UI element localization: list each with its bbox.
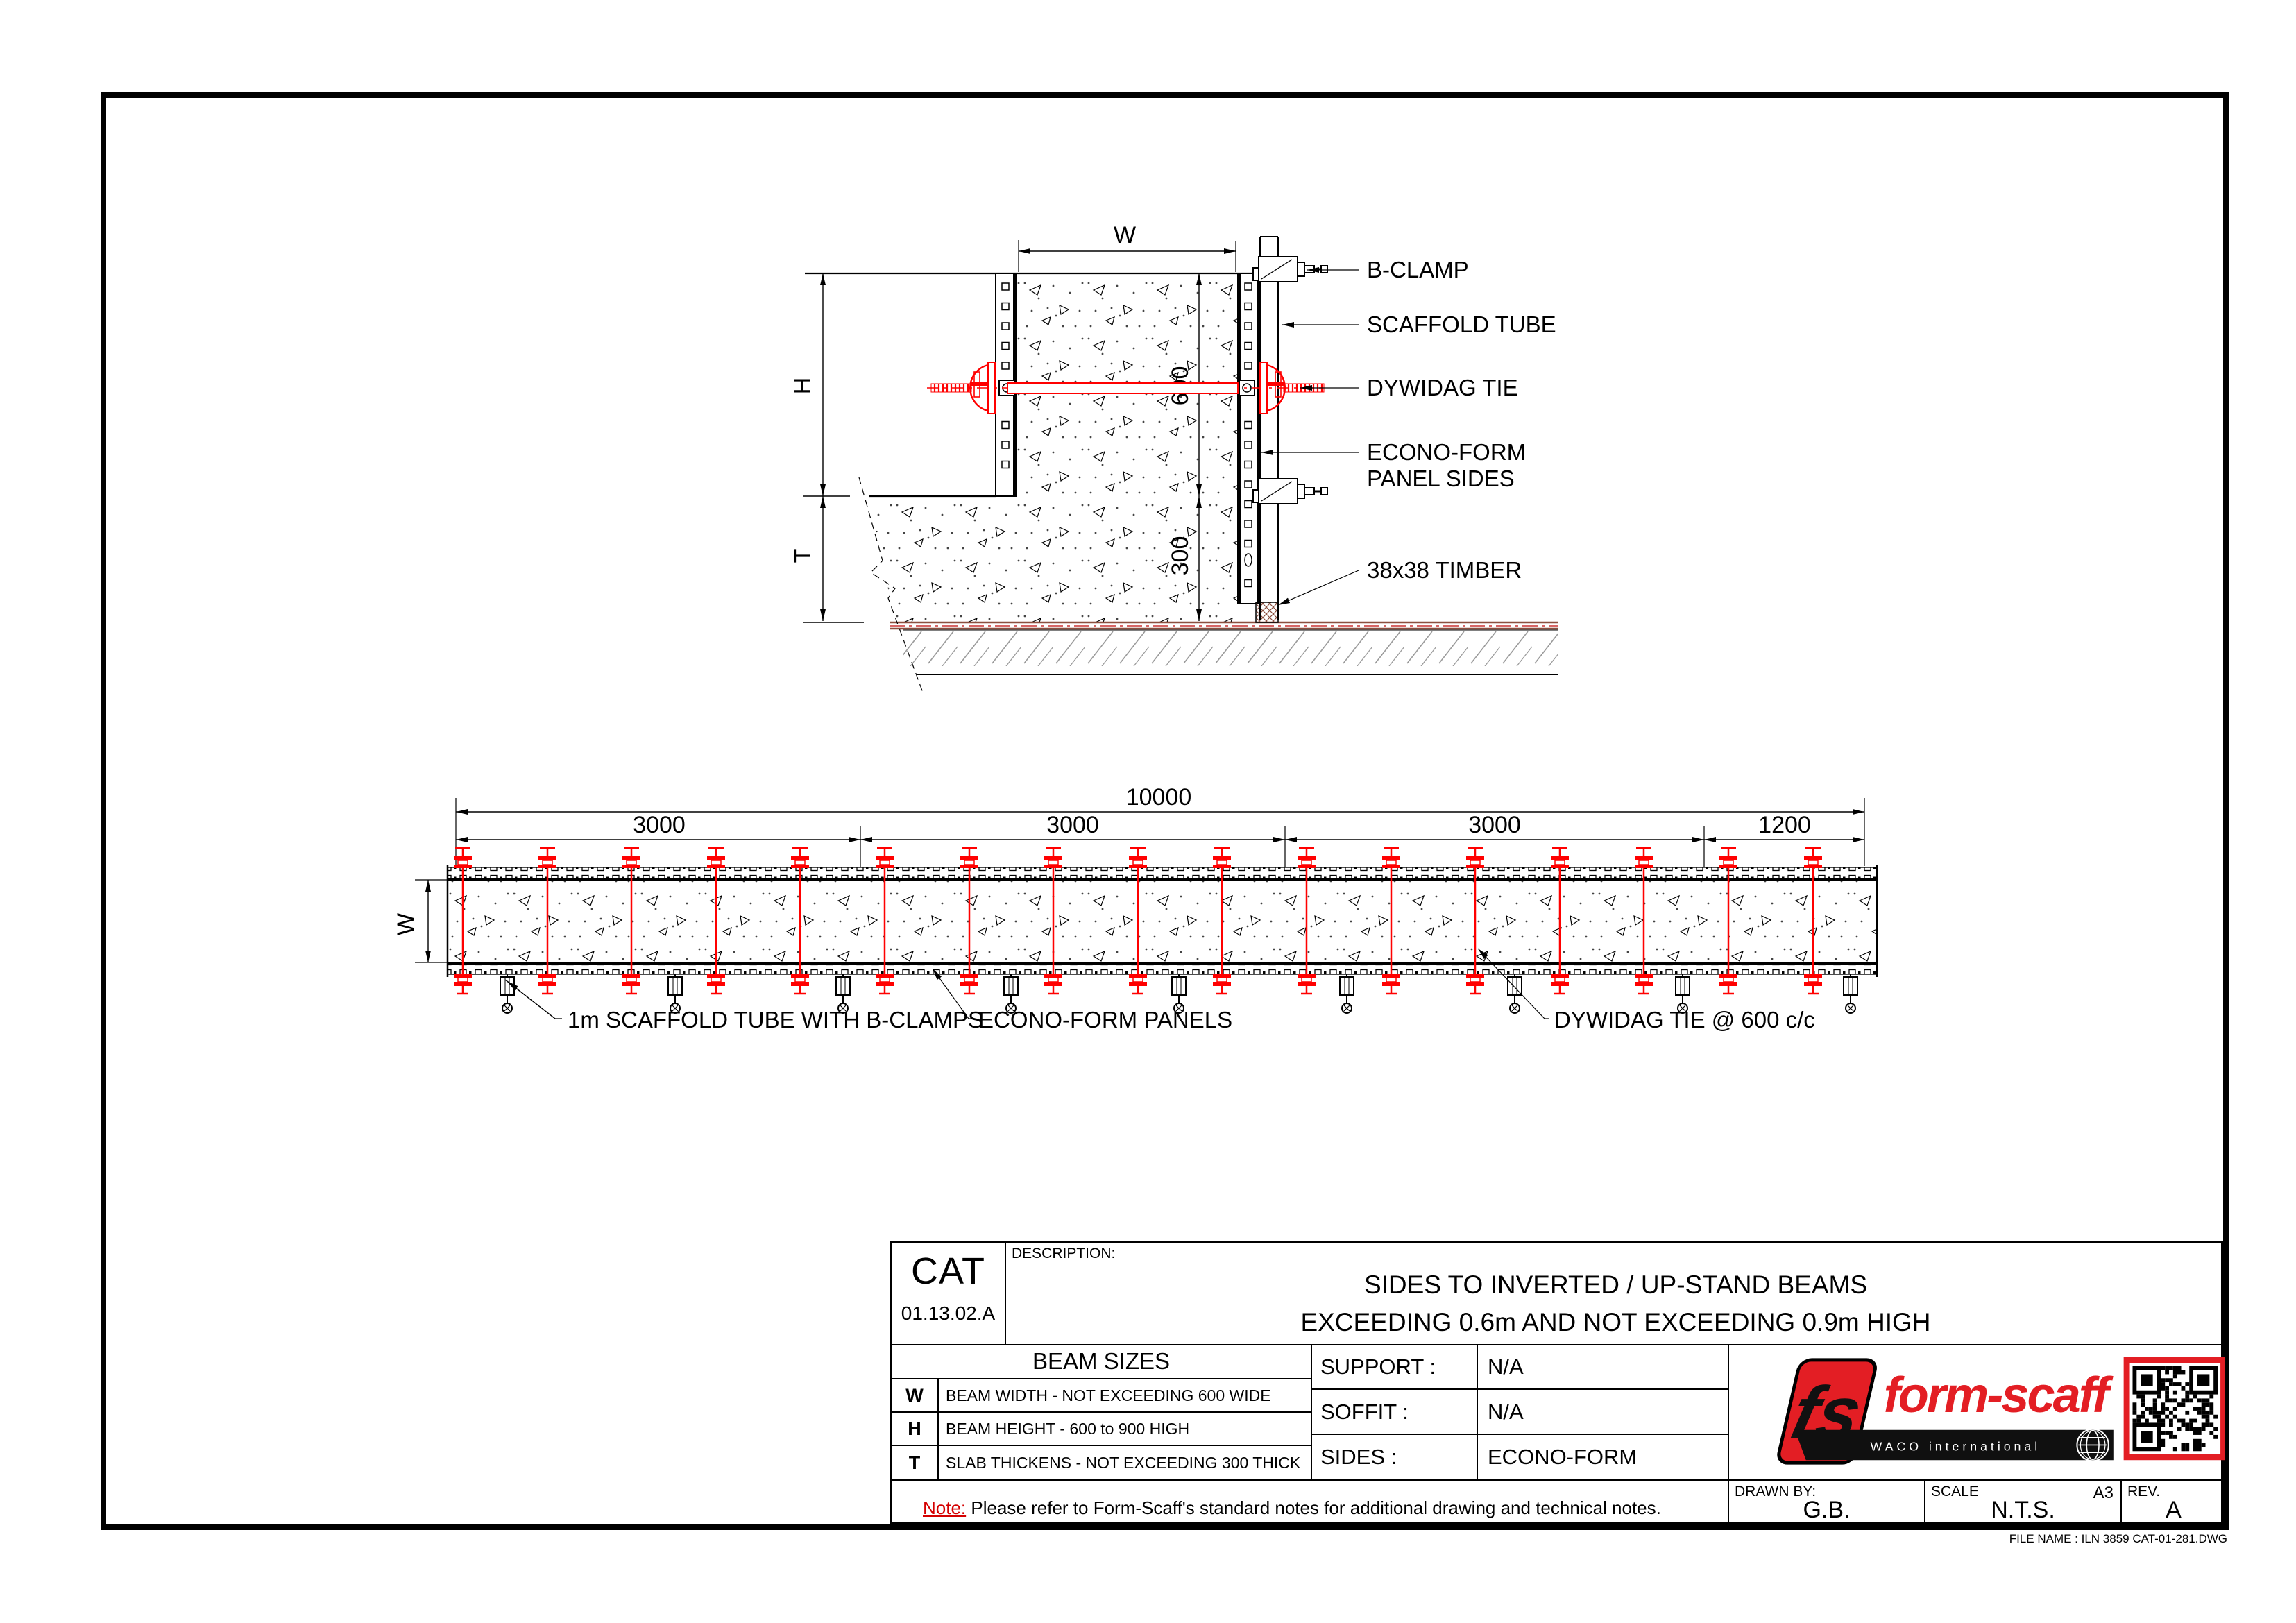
dim-3000-a: 3000 (633, 812, 686, 838)
rev-cell: REV. A (2122, 1479, 2225, 1527)
ground-dpc-layers (890, 622, 1558, 629)
scaffold-tube (1260, 237, 1278, 620)
dim-10000: 10000 (1126, 784, 1192, 810)
beam-concrete (1016, 273, 1238, 622)
note-text: Please refer to Form-Scaff's standard no… (966, 1497, 1661, 1518)
cat-number: 01.13.02.A (892, 1302, 1005, 1325)
label-plan-scaffold: 1m SCAFFOLD TUBE WITH B-CLAMPS (568, 1007, 983, 1033)
globe-icon (2077, 1429, 2108, 1461)
label-dywidag-tie: DYWIDAG TIE (1367, 375, 1518, 400)
qr-code (2124, 1357, 2225, 1460)
section-leaders (1261, 270, 1359, 605)
plan-strip (448, 865, 1877, 977)
dim-1200: 1200 (1758, 812, 1811, 838)
support-label-cell: SUPPORT : (1312, 1345, 1478, 1390)
drawn-by-value: G.B. (1729, 1497, 1924, 1524)
label-plan-tie: DYWIDAG TIE @ 600 c/c (1554, 1007, 1815, 1033)
rev-value: A (2122, 1497, 2225, 1524)
dim-300: 300 (1167, 536, 1193, 576)
note-label: Note: (923, 1497, 966, 1518)
beam-row-w-desc: BEAM WIDTH - NOT EXCEEDING 600 WIDE (939, 1379, 1311, 1411)
dim-3000-b: 3000 (1046, 812, 1099, 838)
logo-cell: fs form-scaff WACO international (1729, 1345, 2225, 1479)
file-name: FILE NAME : ILN 3859 CAT-01-281.DWG (1665, 1532, 2227, 1546)
slab-concrete (869, 496, 1016, 622)
waco-text: WACO international (1871, 1439, 2041, 1453)
form-scaff-logo: fs form-scaff WACO international (1729, 1345, 2225, 1479)
cat-word: CAT (892, 1250, 1005, 1293)
b-clamp-top (1253, 257, 1327, 282)
earth-hatch (903, 630, 1558, 674)
dim-w: W (1114, 222, 1136, 248)
b-clamp-bottom (1253, 479, 1327, 504)
label-econo-form-1: ECONO-FORM (1367, 439, 1526, 465)
support-label: SUPPORT : (1312, 1345, 1477, 1388)
soffit-value-cell: N/A (1478, 1390, 1729, 1435)
beam-row-h-desc: BEAM HEIGHT - 600 to 900 HIGH (939, 1413, 1311, 1445)
note-cell: Note: Please refer to Form-Scaff's stand… (892, 1479, 1729, 1527)
sides-label: SIDES : (1312, 1435, 1477, 1479)
cat-cell: CAT 01.13.02.A (892, 1243, 1006, 1345)
title-block: CAT 01.13.02.A DESCRIPTION: SIDES TO INV… (890, 1241, 2223, 1524)
beam-row-t-key: T (892, 1446, 939, 1479)
cross-section-view: W H T 600 300 (790, 222, 1558, 692)
plan-view: 10000 3000 3000 3000 1200 W (393, 784, 1877, 1033)
label-plan-panels: ECONO-FORM PANELS (978, 1007, 1232, 1033)
drawing-sheet: W H T 600 300 (0, 0, 2296, 1623)
timber-block (1256, 602, 1278, 622)
beam-row-w-key: W (892, 1379, 939, 1411)
dim-3000-c: 3000 (1468, 812, 1521, 838)
econo-form-panel-right (1238, 273, 1258, 604)
description-label: DESCRIPTION: (1012, 1246, 1115, 1262)
beam-row-t: T SLAB THICKENS - NOT EXCEEDING 300 THIC… (892, 1446, 1312, 1479)
scale-cell: SCALE A3 N.T.S. (1925, 1479, 2122, 1527)
beam-row-w: W BEAM WIDTH - NOT EXCEEDING 600 WIDE (892, 1379, 1312, 1413)
label-scaffold-tube: SCAFFOLD TUBE (1367, 312, 1556, 337)
sides-value-cell: ECONO-FORM (1478, 1435, 1729, 1479)
beam-row-h-key: H (892, 1413, 939, 1445)
soffit-value: N/A (1478, 1390, 1728, 1434)
support-value-cell: N/A (1478, 1345, 1729, 1390)
beam-row-t-desc: SLAB THICKENS - NOT EXCEEDING 300 THICK (939, 1446, 1311, 1479)
dim-plan-w: W (393, 913, 419, 935)
sides-value: ECONO-FORM (1478, 1435, 1728, 1479)
description-line2: EXCEEDING 0.6m AND NOT EXCEEDING 0.9m HI… (1006, 1308, 2225, 1337)
brand-wordmark: form-scaff (1884, 1368, 2114, 1423)
beam-sizes-title: BEAM SIZES (892, 1345, 1311, 1377)
dim-h: H (790, 377, 816, 395)
soffit-label-cell: SOFFIT : (1312, 1390, 1478, 1435)
beam-row-h: H BEAM HEIGHT - 600 to 900 HIGH (892, 1413, 1312, 1446)
scale-value: N.T.S. (1925, 1497, 2120, 1524)
label-econo-form-2: PANEL SIDES (1367, 466, 1515, 491)
beam-sizes-header: BEAM SIZES (892, 1345, 1312, 1379)
note-line: Note: Please refer to Form-Scaff's stand… (923, 1497, 1661, 1519)
sides-label-cell: SIDES : (1312, 1435, 1478, 1479)
support-value: N/A (1478, 1345, 1728, 1388)
dim-t: T (790, 549, 816, 563)
description-cell: DESCRIPTION: SIDES TO INVERTED / UP-STAN… (1006, 1243, 2225, 1345)
label-b-clamp: B-CLAMP (1367, 257, 1469, 282)
drawn-by-cell: DRAWN BY: G.B. (1729, 1479, 1925, 1527)
label-timber: 38x38 TIMBER (1367, 557, 1522, 583)
description-line1: SIDES TO INVERTED / UP-STAND BEAMS (1006, 1271, 2225, 1300)
soffit-label: SOFFIT : (1312, 1390, 1477, 1434)
